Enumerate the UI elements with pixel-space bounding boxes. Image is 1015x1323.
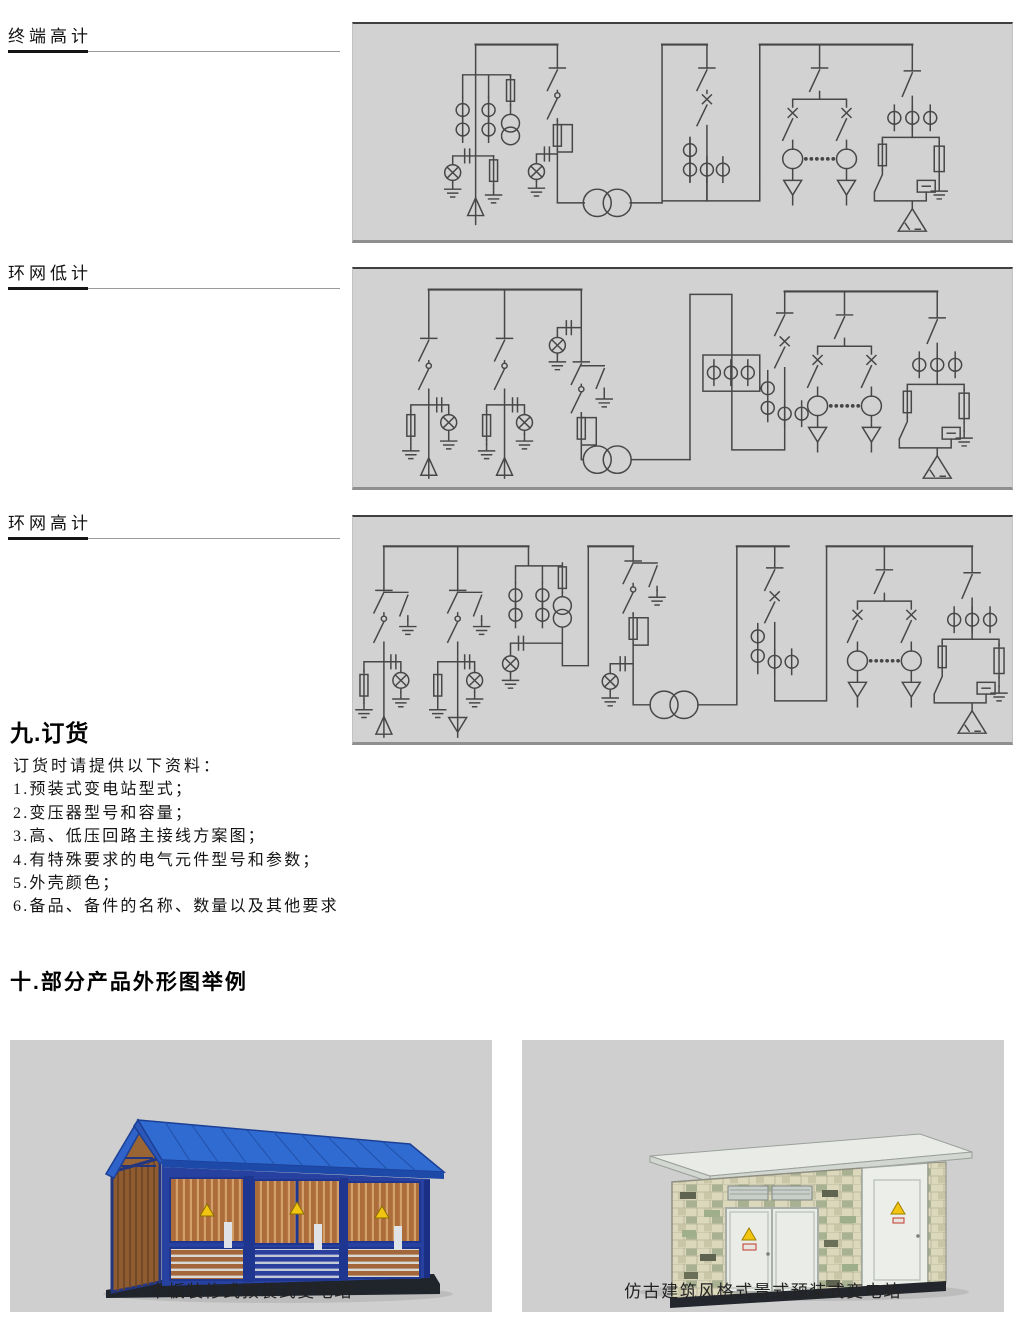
ordering-item: 3.高、低压回路主接线方案图； — [13, 825, 339, 848]
products-section-title: 十.部分产品外形图举例 — [10, 966, 248, 996]
wood-substation-illustration — [10, 1040, 492, 1312]
single-line-diagram-terminal-high — [353, 24, 1012, 240]
ordering-info-list: 订货时请提供以下资料： 1.预装式变电站型式； 2.变压器型号和容量； 3.高、… — [13, 755, 339, 919]
schematic-label-text: 环网高计 — [8, 509, 340, 534]
product-photo-wood-substation: 木板装修式预装式变电站 — [10, 1040, 492, 1312]
label-underline — [8, 287, 340, 291]
ordering-intro: 订货时请提供以下资料： — [13, 755, 339, 778]
label-underline — [8, 50, 340, 54]
schematic-label-terminal-high-metering: 终端高计 — [8, 22, 340, 54]
brick-substation-illustration — [522, 1040, 1004, 1312]
schematic-label-text: 终端高计 — [8, 22, 340, 47]
ordering-item: 4.有特殊要求的电气元件型号和参数； — [13, 849, 339, 872]
schematic-label-ring-low-metering: 环网低计 — [8, 259, 340, 291]
single-line-diagram-ring-high — [353, 517, 1012, 742]
schematic-panel-terminal-high-metering — [352, 22, 1013, 243]
single-line-diagram-ring-low — [353, 269, 1012, 487]
label-underline — [8, 537, 340, 541]
schematic-panel-ring-low-metering — [352, 267, 1013, 490]
ordering-item: 1.预装式变电站型式； — [13, 778, 339, 801]
schematic-panel-ring-high-metering — [352, 515, 1013, 745]
ordering-section-title: 九.订货 — [10, 714, 89, 748]
schematic-label-ring-high-metering: 环网高计 — [8, 509, 340, 541]
ordering-item: 2.变压器型号和容量； — [13, 802, 339, 825]
product-caption: 木板装修式预装式变电站 — [10, 1277, 492, 1302]
ordering-item: 6.备品、备件的名称、数量以及其他要求 — [13, 895, 339, 918]
ordering-item: 5.外壳颜色； — [13, 872, 339, 895]
schematic-label-text: 环网低计 — [8, 259, 340, 284]
product-caption: 仿古建筑风格式景式预装式变电站 — [522, 1277, 1004, 1302]
catalog-page: 终端高计 — [0, 0, 1015, 1323]
product-photo-brick-substation: 仿古建筑风格式景式预装式变电站 — [522, 1040, 1004, 1312]
